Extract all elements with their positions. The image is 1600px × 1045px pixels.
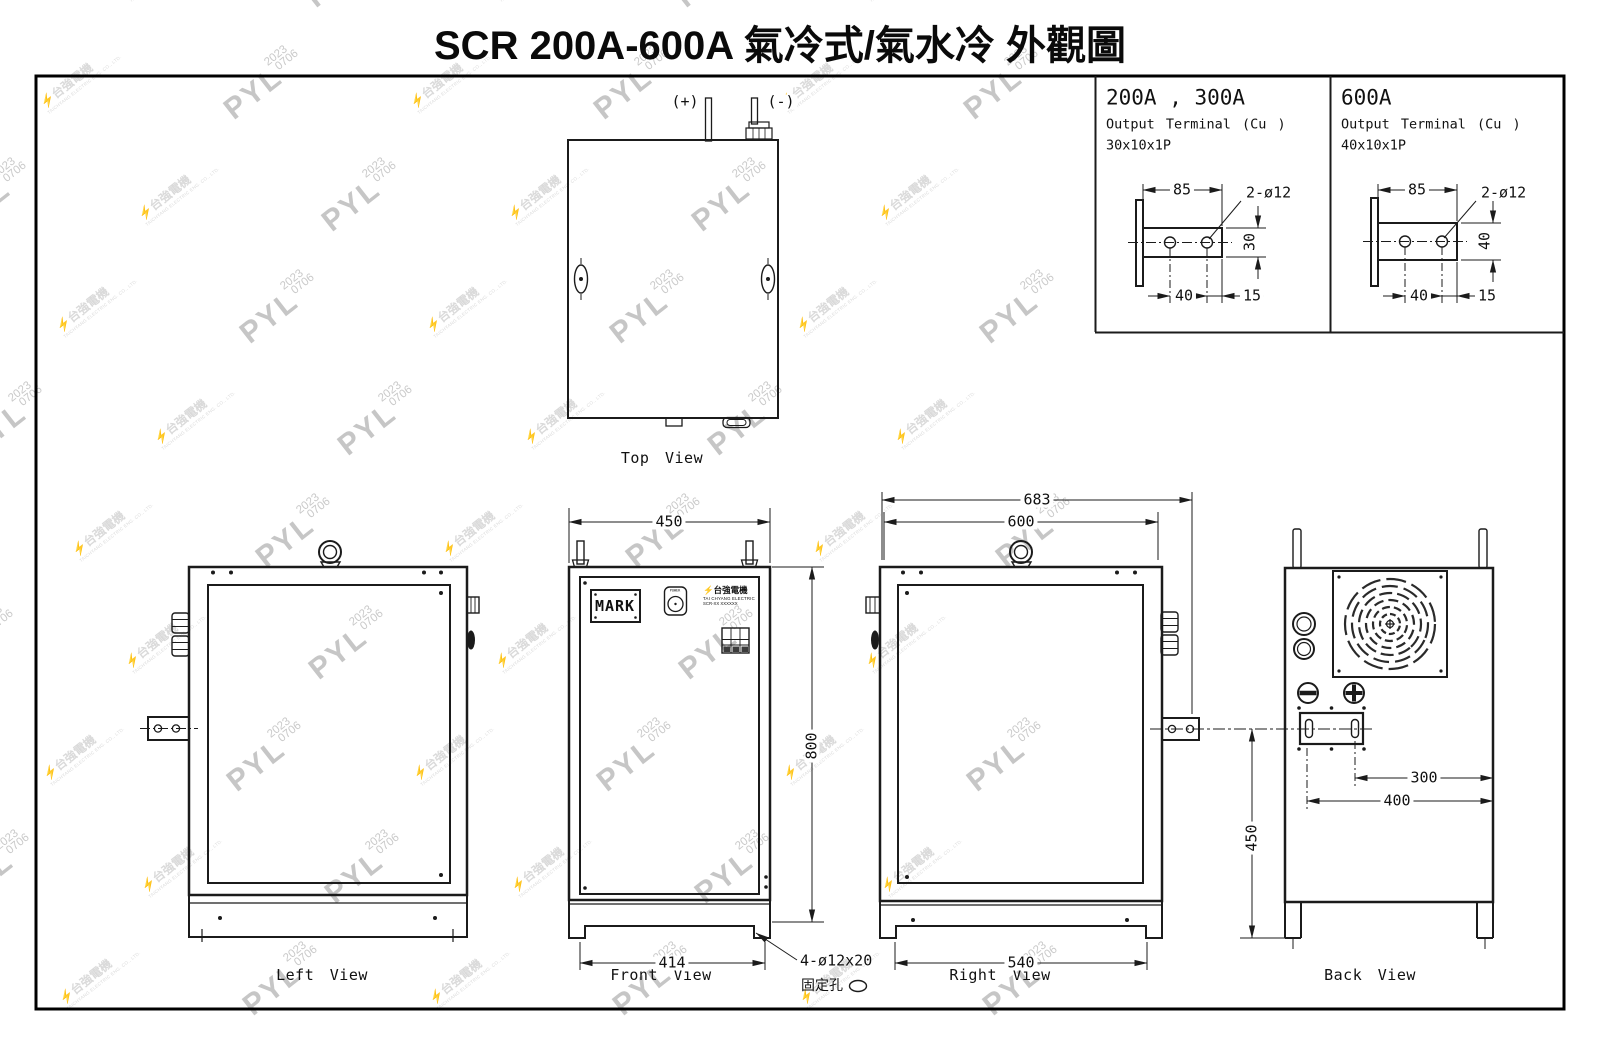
side-latch-right	[762, 258, 775, 300]
minus-terminal	[746, 98, 772, 139]
drawing-canvas	[0, 0, 1600, 1045]
lifting-eye	[1010, 541, 1032, 567]
plus-terminal	[706, 98, 712, 141]
detail-1-drawing	[1128, 184, 1266, 303]
top-view-drawing	[568, 98, 778, 428]
border-frame	[36, 76, 1564, 1009]
water-connectors	[1293, 613, 1315, 659]
front-view-drawing	[569, 508, 867, 992]
screw-slotted	[1298, 683, 1318, 703]
left-view-drawing	[140, 541, 479, 942]
dim-414-lines	[580, 942, 765, 970]
cable-glands	[1161, 612, 1178, 655]
terminal-block	[722, 628, 749, 653]
fan-grille	[1333, 571, 1447, 677]
door-latch	[467, 631, 475, 650]
right-view-drawing	[866, 492, 1199, 970]
dim-683-600-lines	[882, 492, 1192, 714]
dim-800-lines	[772, 567, 824, 922]
detail-2-drawing	[1363, 184, 1501, 303]
dim-540-lines	[895, 942, 1147, 970]
door-latch	[871, 631, 879, 650]
back-dim-lines	[1240, 729, 1493, 938]
lifting-eye	[319, 541, 341, 567]
mark-plate	[591, 590, 640, 622]
back-view-drawing	[1150, 529, 1493, 949]
slot-plate	[1297, 706, 1366, 751]
mounting-bracket-left	[140, 717, 198, 740]
dim-450-lines	[569, 508, 770, 563]
side-latch-left	[575, 258, 588, 300]
power-lamp	[665, 587, 687, 615]
cable-glands	[172, 613, 189, 656]
drawing-page: PYL20230706⚡台強電機TAICHYANG ELECTRIC ENG. …	[0, 0, 1600, 1045]
screw-phillips	[1344, 683, 1364, 703]
slot-hole-symbol	[850, 981, 867, 992]
